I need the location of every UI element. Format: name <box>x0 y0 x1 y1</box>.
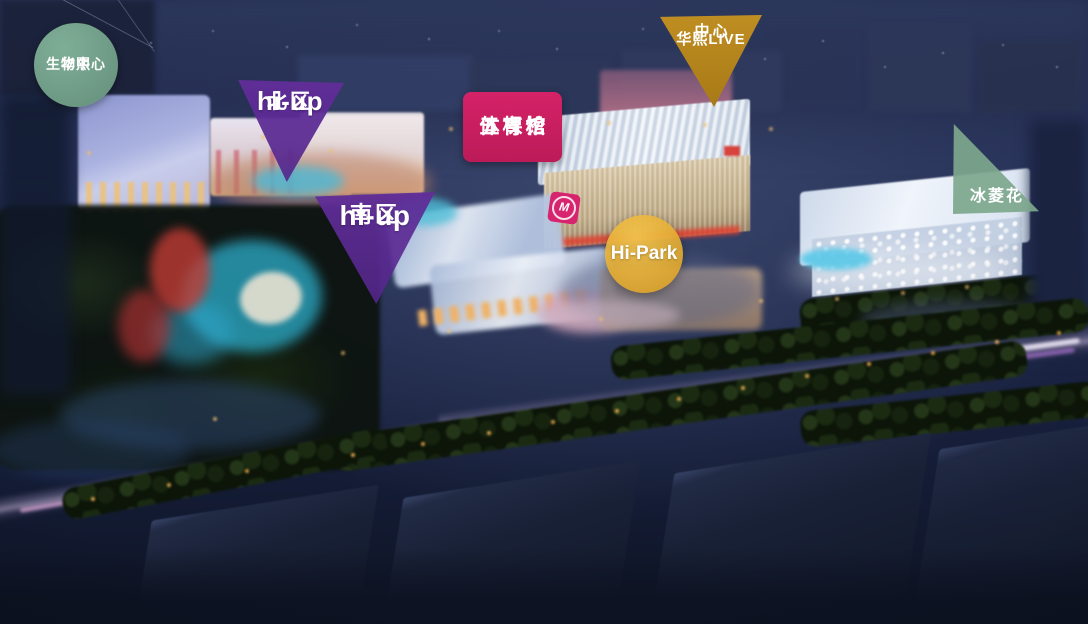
bio-center-label-line2: 生物中心 <box>46 54 106 76</box>
arena-label-line2: 体育馆 <box>477 112 549 142</box>
hi-park-label: Hi-Park <box>611 243 678 265</box>
hi-up-north-zone-label: 北区 <box>267 85 313 114</box>
marker-huaxi-bio-center: 华熙 生物中心 <box>34 23 118 107</box>
live-center-label-line2: 中心 <box>691 20 730 41</box>
marker-hi-park: Hi-Park <box>605 215 683 293</box>
marker-wukesong-arena: 五棵松 体育馆 <box>463 92 562 162</box>
hi-up-south-zone-label: 南区 <box>350 197 400 229</box>
aerial-night-photo: M 华熙 生物中心 hi- <box>0 0 1088 624</box>
